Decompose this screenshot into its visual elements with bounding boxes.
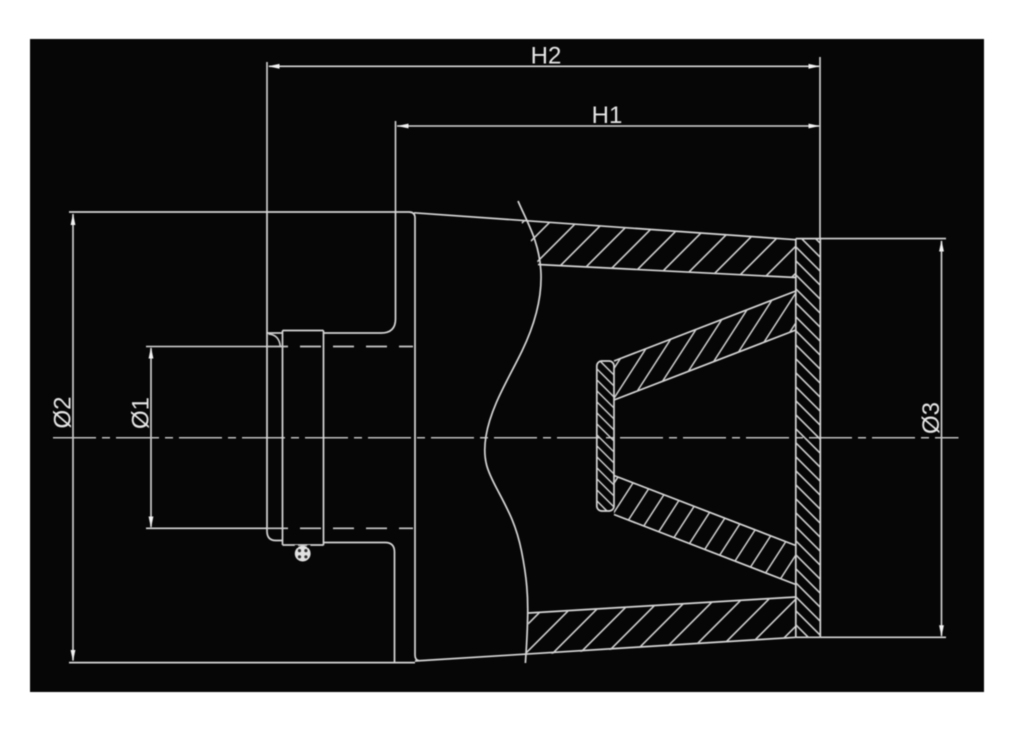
svg-text:Ø1: Ø1 xyxy=(128,397,155,429)
svg-text:H2: H2 xyxy=(531,43,562,70)
svg-text:H1: H1 xyxy=(592,102,623,129)
svg-text:Ø3: Ø3 xyxy=(918,402,945,434)
svg-text:Ø2: Ø2 xyxy=(50,396,77,428)
